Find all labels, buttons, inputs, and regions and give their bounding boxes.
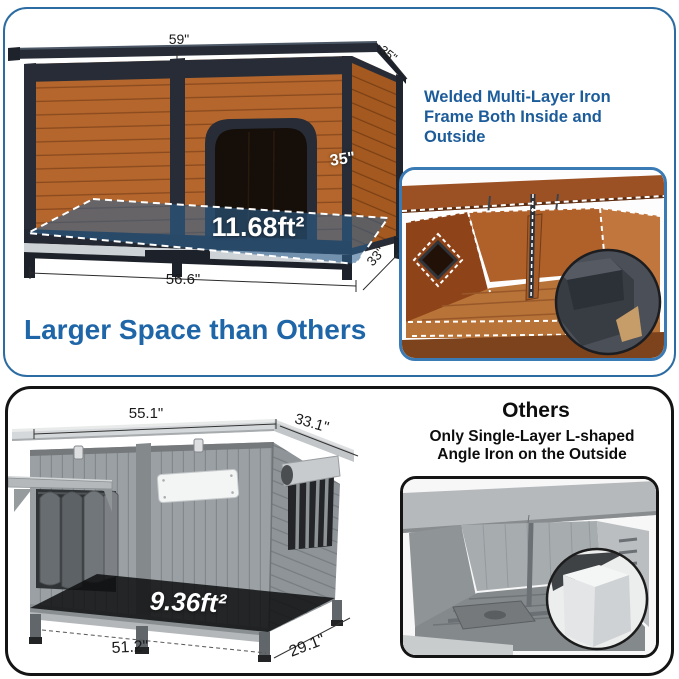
dim-label-width-top: 59": [157, 31, 201, 47]
heading-line: Outside: [424, 127, 672, 147]
plain-corner-photo: [400, 476, 659, 658]
others-sub-line: Angle Iron on the Outside: [398, 446, 666, 464]
floor-area-label: 9.36ft²: [125, 585, 250, 620]
name-plate: [157, 469, 239, 503]
larger-space-tagline: Larger Space than Others: [24, 314, 444, 346]
others-heading: Others: [410, 399, 662, 423]
plain-corner-zoom-inset: [547, 549, 647, 649]
dim-label-height: 35": [329, 149, 357, 170]
dim-label-width-bottom: 56.6": [152, 271, 214, 288]
brown-doghouse-photo: [0, 22, 420, 312]
heading-line: Welded Multi-Layer Iron: [424, 87, 672, 107]
others-sub-line: Only Single-Layer L-shaped: [398, 428, 666, 446]
gray-interior-illustration: [403, 479, 656, 655]
welded-frame-heading: Welded Multi-Layer Iron Frame Both Insid…: [424, 87, 672, 147]
dim-label-width-bottom: 51.2": [98, 637, 163, 658]
floor-area-label: 11.68ft²: [196, 212, 320, 243]
barred-window: [281, 456, 340, 550]
product-infographic: 59" 35" 35" 11.68ft² 56.6" 33" Welded Mu…: [0, 0, 679, 679]
dim-label-width-top: 55.1": [115, 405, 177, 422]
heading-line: Frame Both Inside and: [424, 107, 672, 127]
others-subheading: Only Single-Layer L-shaped Angle Iron on…: [398, 428, 666, 463]
